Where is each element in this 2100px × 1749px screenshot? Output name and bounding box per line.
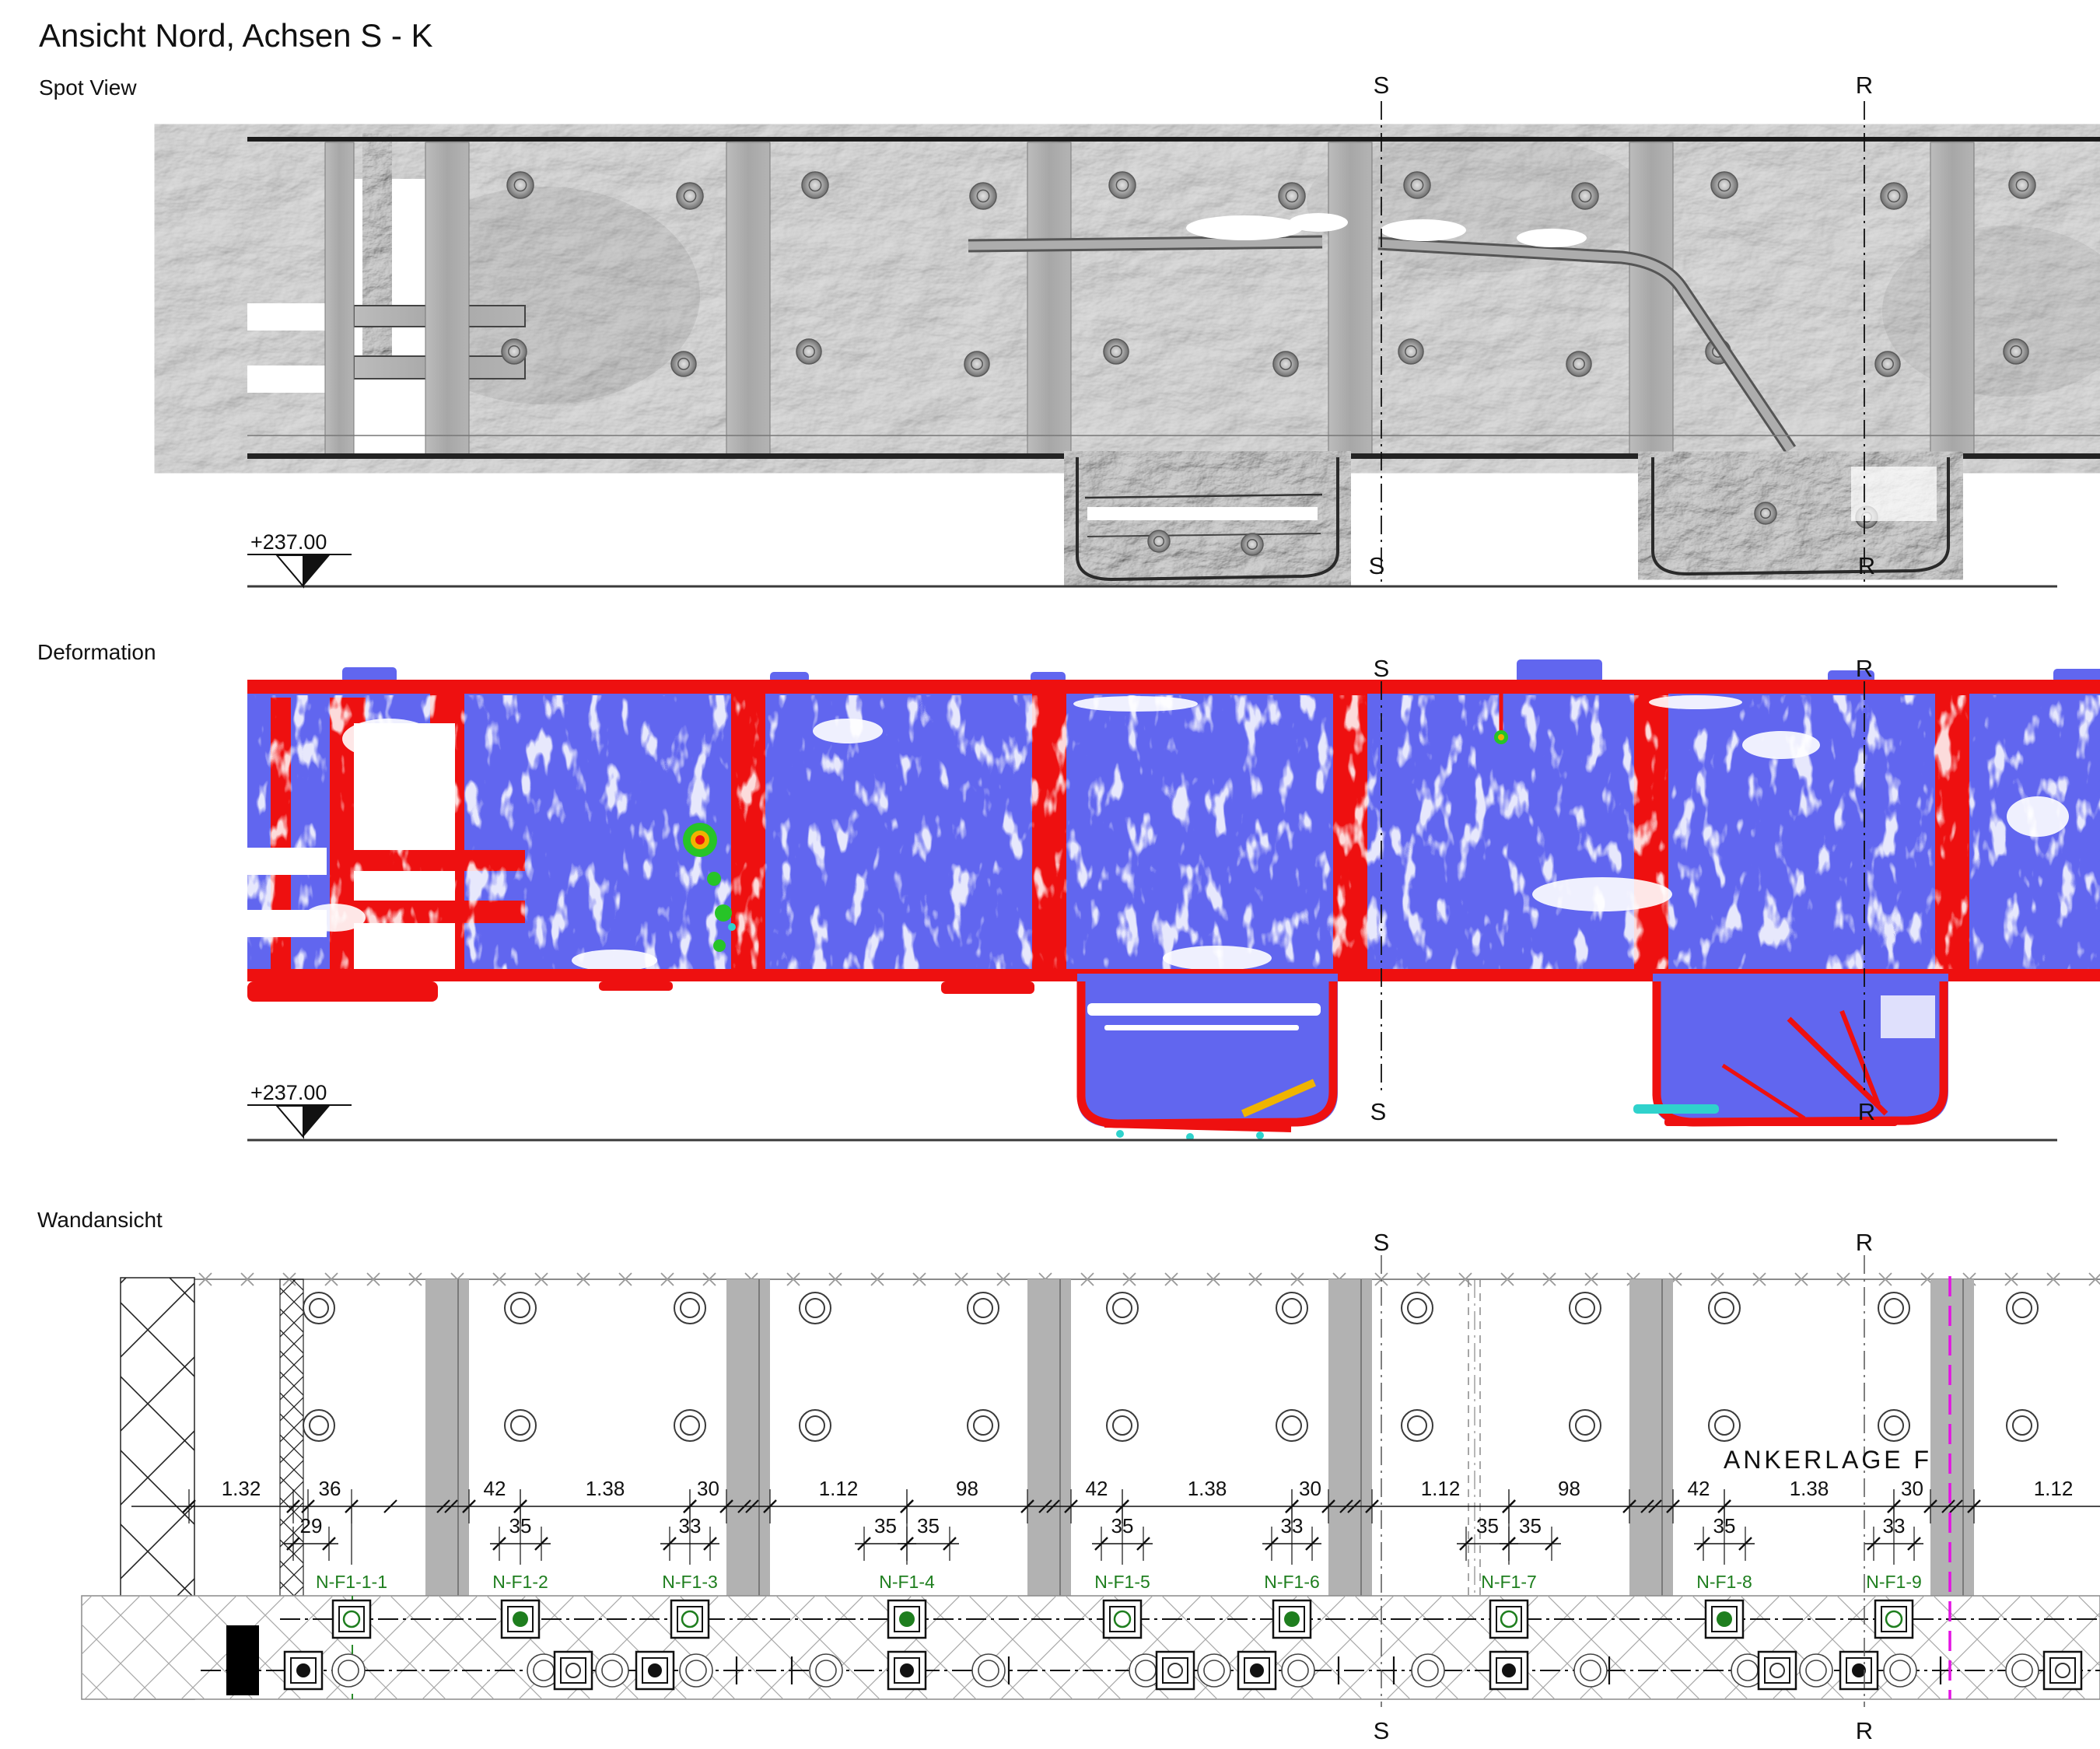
anchor-state-open <box>682 1611 698 1627</box>
spot-view <box>247 101 2100 586</box>
axis-s-bottom-deformation: S <box>1370 1098 1387 1125</box>
anchor-head-icon <box>1709 1410 1740 1441</box>
anchor-head-icon <box>968 1293 999 1324</box>
anchor-state-open <box>2056 1663 2070 1677</box>
pilaster <box>1629 1279 1673 1596</box>
dimension-value: 1.12 <box>1421 1477 1461 1500</box>
anchor-head-icon <box>1570 1293 1601 1324</box>
pilaster <box>1930 142 1974 457</box>
anchor-label: N-F1-2 <box>492 1572 548 1592</box>
anchor-state-black <box>296 1663 310 1677</box>
elevation-value-spot: +237.00 <box>250 530 327 554</box>
anchor-head-icon <box>1276 1410 1307 1441</box>
anchor-state-black <box>1502 1663 1516 1677</box>
anchor-state-filled <box>899 1611 915 1627</box>
deformation-section-label: Deformation <box>37 640 156 664</box>
anchor-label: N-F1-7 <box>1481 1572 1537 1592</box>
anchor-head-icon <box>1402 1410 1433 1441</box>
axis-r-bottom-wand: R <box>1856 1717 1873 1744</box>
tie-rod-boss-icon <box>1875 352 1900 376</box>
dimension-value: 42 <box>484 1477 506 1500</box>
anchor-state-black <box>1250 1663 1264 1677</box>
tie-rod-boss-icon <box>1755 502 1776 524</box>
tie-rod-boss-icon <box>1148 530 1170 552</box>
anchor-head-icon <box>674 1410 705 1441</box>
tie-rod-boss-icon <box>2009 172 2035 198</box>
anchor-head-icon <box>1412 1654 1444 1687</box>
tie-rod-boss-icon <box>1711 172 1738 198</box>
anchor-head-icon <box>505 1293 536 1324</box>
axis-s-bottom-spot: S <box>1369 552 1385 579</box>
tie-rod-boss-icon <box>2004 339 2028 364</box>
anchor-state-open <box>1770 1663 1784 1677</box>
anchor-head-icon <box>1884 1654 1916 1687</box>
anchor-head-icon <box>1107 1410 1138 1441</box>
anchor-head-icon <box>1198 1654 1230 1687</box>
pilaster <box>726 142 770 457</box>
anchor-state-filled <box>1284 1611 1300 1627</box>
anchor-head-icon <box>596 1654 628 1687</box>
dimension-value: 1.32 <box>222 1477 261 1500</box>
spot-view-label: Spot View <box>39 75 137 100</box>
pilaster <box>726 1279 770 1596</box>
pilaster <box>1629 142 1673 457</box>
anchor-label: N-F1-6 <box>1264 1572 1320 1592</box>
anchor-state-open <box>1886 1611 1902 1627</box>
page-title: Ansicht Nord, Achsen S - K <box>39 17 433 54</box>
pipe <box>968 242 1322 246</box>
axis-r-bottom-deformation: R <box>1858 1098 1875 1125</box>
tie-rod-boss-icon <box>1109 172 1136 198</box>
anchor-label: N-F1-8 <box>1696 1572 1752 1592</box>
wandansicht-section-label: Wandansicht <box>37 1208 163 1232</box>
tie-rod-boss-icon <box>970 183 996 209</box>
anchor-head-icon <box>1107 1293 1138 1324</box>
anchor-state-filled <box>513 1611 528 1627</box>
anchor-state-open <box>344 1611 359 1627</box>
anchor-state-open <box>1168 1663 1182 1677</box>
tie-rod-boss-icon <box>677 183 703 209</box>
tie-rod-boss-icon <box>1104 339 1129 364</box>
pilaster <box>425 1279 469 1596</box>
pilaster <box>1027 142 1071 457</box>
dimension-value: 1.12 <box>2034 1477 2074 1500</box>
anchor-state-open <box>1501 1611 1517 1627</box>
anchor-label: N-F1-5 <box>1094 1572 1150 1592</box>
anchor-state-black <box>900 1663 914 1677</box>
anchor-label: N-F1-3 <box>662 1572 718 1592</box>
sub-dimension-value: 35 <box>1476 1514 1499 1537</box>
dimension-value: 1.38 <box>586 1477 625 1500</box>
axis-s-top-spot: S <box>1374 72 1390 99</box>
dimension-value: 1.12 <box>819 1477 859 1500</box>
sub-dimension-value: 29 <box>300 1514 323 1537</box>
tie-rod-boss-icon <box>1241 533 1263 555</box>
axis-r-top-spot: R <box>1856 72 1873 99</box>
elevation-triangle <box>277 555 303 586</box>
tie-rod-boss-icon <box>796 339 821 364</box>
anchor-head-icon <box>2007 1293 2038 1324</box>
dimension-value: 36 <box>319 1477 341 1500</box>
anchor-label: N-F1-9 <box>1866 1572 1922 1592</box>
pilaster <box>325 142 354 457</box>
anchor-head-icon <box>674 1293 705 1324</box>
wall-elevation-drawing: 1.3236421.38301.1298421.38301.1298421.38… <box>82 1255 2100 1707</box>
tie-rod-boss-icon <box>1398 339 1423 364</box>
dimension-value: 1.38 <box>1188 1477 1227 1500</box>
anchor-state-open <box>566 1663 580 1677</box>
tie-rod-boss-icon <box>964 352 989 376</box>
pilaster <box>1328 1279 1372 1596</box>
anchor-head-icon <box>332 1654 365 1687</box>
deformation-recess <box>1077 974 1338 1128</box>
anchor-head-icon <box>1282 1654 1314 1687</box>
pilaster <box>1027 1279 1071 1596</box>
axis-r-top-wand: R <box>1856 1229 1873 1256</box>
anchor-head-icon <box>1276 1293 1307 1324</box>
anchor-head-icon <box>800 1410 831 1441</box>
tie-rod-boss-icon <box>1572 183 1598 209</box>
anchor-head-icon <box>800 1293 831 1324</box>
solid-block <box>226 1625 259 1695</box>
deformation-view <box>247 659 2100 1141</box>
tie-rod-boss-icon <box>1273 352 1298 376</box>
sub-dimension-value: 35 <box>917 1514 940 1537</box>
anchor-head-icon <box>680 1654 712 1687</box>
deformation-exceed-band <box>247 680 2100 694</box>
dimension-value: 42 <box>1688 1477 1710 1500</box>
tie-rod-boss-icon <box>1881 183 1907 209</box>
anchor-label: N-F1-4 <box>879 1572 935 1592</box>
axis-s-top-wand: S <box>1374 1229 1390 1256</box>
elevation-triangle <box>303 555 330 586</box>
tie-rod-boss-icon <box>671 352 696 376</box>
axis-s-top-deformation: S <box>1374 655 1390 682</box>
elevation-triangle <box>303 1106 330 1137</box>
masonry-hatch-column <box>280 1279 303 1596</box>
anchor-head-icon <box>1800 1654 1832 1687</box>
anchor-state-open <box>1115 1611 1130 1627</box>
tie-rod-boss-icon <box>1566 352 1591 376</box>
anchor-head-icon <box>1570 1410 1601 1441</box>
tie-rod-boss-icon <box>507 172 534 198</box>
crosshatch-band <box>82 1596 2100 1699</box>
anchor-head-icon <box>968 1410 999 1441</box>
sub-dimension-value: 35 <box>1519 1514 1542 1537</box>
dimension-value: 98 <box>956 1477 978 1500</box>
pilaster <box>425 142 469 457</box>
elevation-triangle <box>277 1106 303 1137</box>
dimension-value: 30 <box>697 1477 719 1500</box>
tie-rod-boss-icon <box>502 339 527 364</box>
anchor-head-icon <box>303 1293 334 1324</box>
anchor-head-icon <box>810 1654 842 1687</box>
anchor-head-icon <box>2007 1410 2038 1441</box>
dimension-value: 30 <box>1299 1477 1321 1500</box>
anchor-head-icon <box>1574 1654 1607 1687</box>
pilaster <box>1930 1279 1974 1596</box>
dimension-value: 98 <box>1558 1477 1580 1500</box>
anchor-head-icon <box>1878 1293 1909 1324</box>
drawing-sheet: 1.3236421.38301.1298421.38301.1298421.38… <box>0 0 2100 1749</box>
sub-dimension-value: 35 <box>874 1514 897 1537</box>
dimension-value: 42 <box>1086 1477 1108 1500</box>
anchor-head-icon <box>505 1410 536 1441</box>
anchor-head-icon <box>1709 1293 1740 1324</box>
anchor-head-icon <box>1878 1410 1909 1441</box>
tie-rod-boss-icon <box>1279 183 1305 209</box>
anchor-head-icon <box>972 1654 1005 1687</box>
tie-rod-boss-icon <box>1404 172 1430 198</box>
anchor-head-icon <box>303 1410 334 1441</box>
elevation-value-deformation: +237.00 <box>250 1081 327 1104</box>
anchor-state-filled <box>1717 1611 1732 1627</box>
axis-r-top-deformation: R <box>1856 655 1873 682</box>
tie-rod-boss-icon <box>802 172 828 198</box>
anchor-head-icon <box>2006 1654 2039 1687</box>
axis-r-bottom-spot: R <box>1858 552 1875 579</box>
anchor-label: N-F1-1-1 <box>316 1572 387 1592</box>
sheet-svg: 1.3236421.38301.1298421.38301.1298421.38… <box>0 0 2100 1749</box>
pilaster <box>1328 142 1372 457</box>
dimension-value: 1.38 <box>1790 1477 1829 1500</box>
anchor-state-black <box>648 1663 662 1677</box>
anchor-head-icon <box>1402 1293 1433 1324</box>
axis-s-bottom-wand: S <box>1374 1717 1390 1744</box>
dimension-value: 30 <box>1901 1477 1923 1500</box>
ankerlage-label: ANKERLAGE F <box>1724 1446 1932 1474</box>
